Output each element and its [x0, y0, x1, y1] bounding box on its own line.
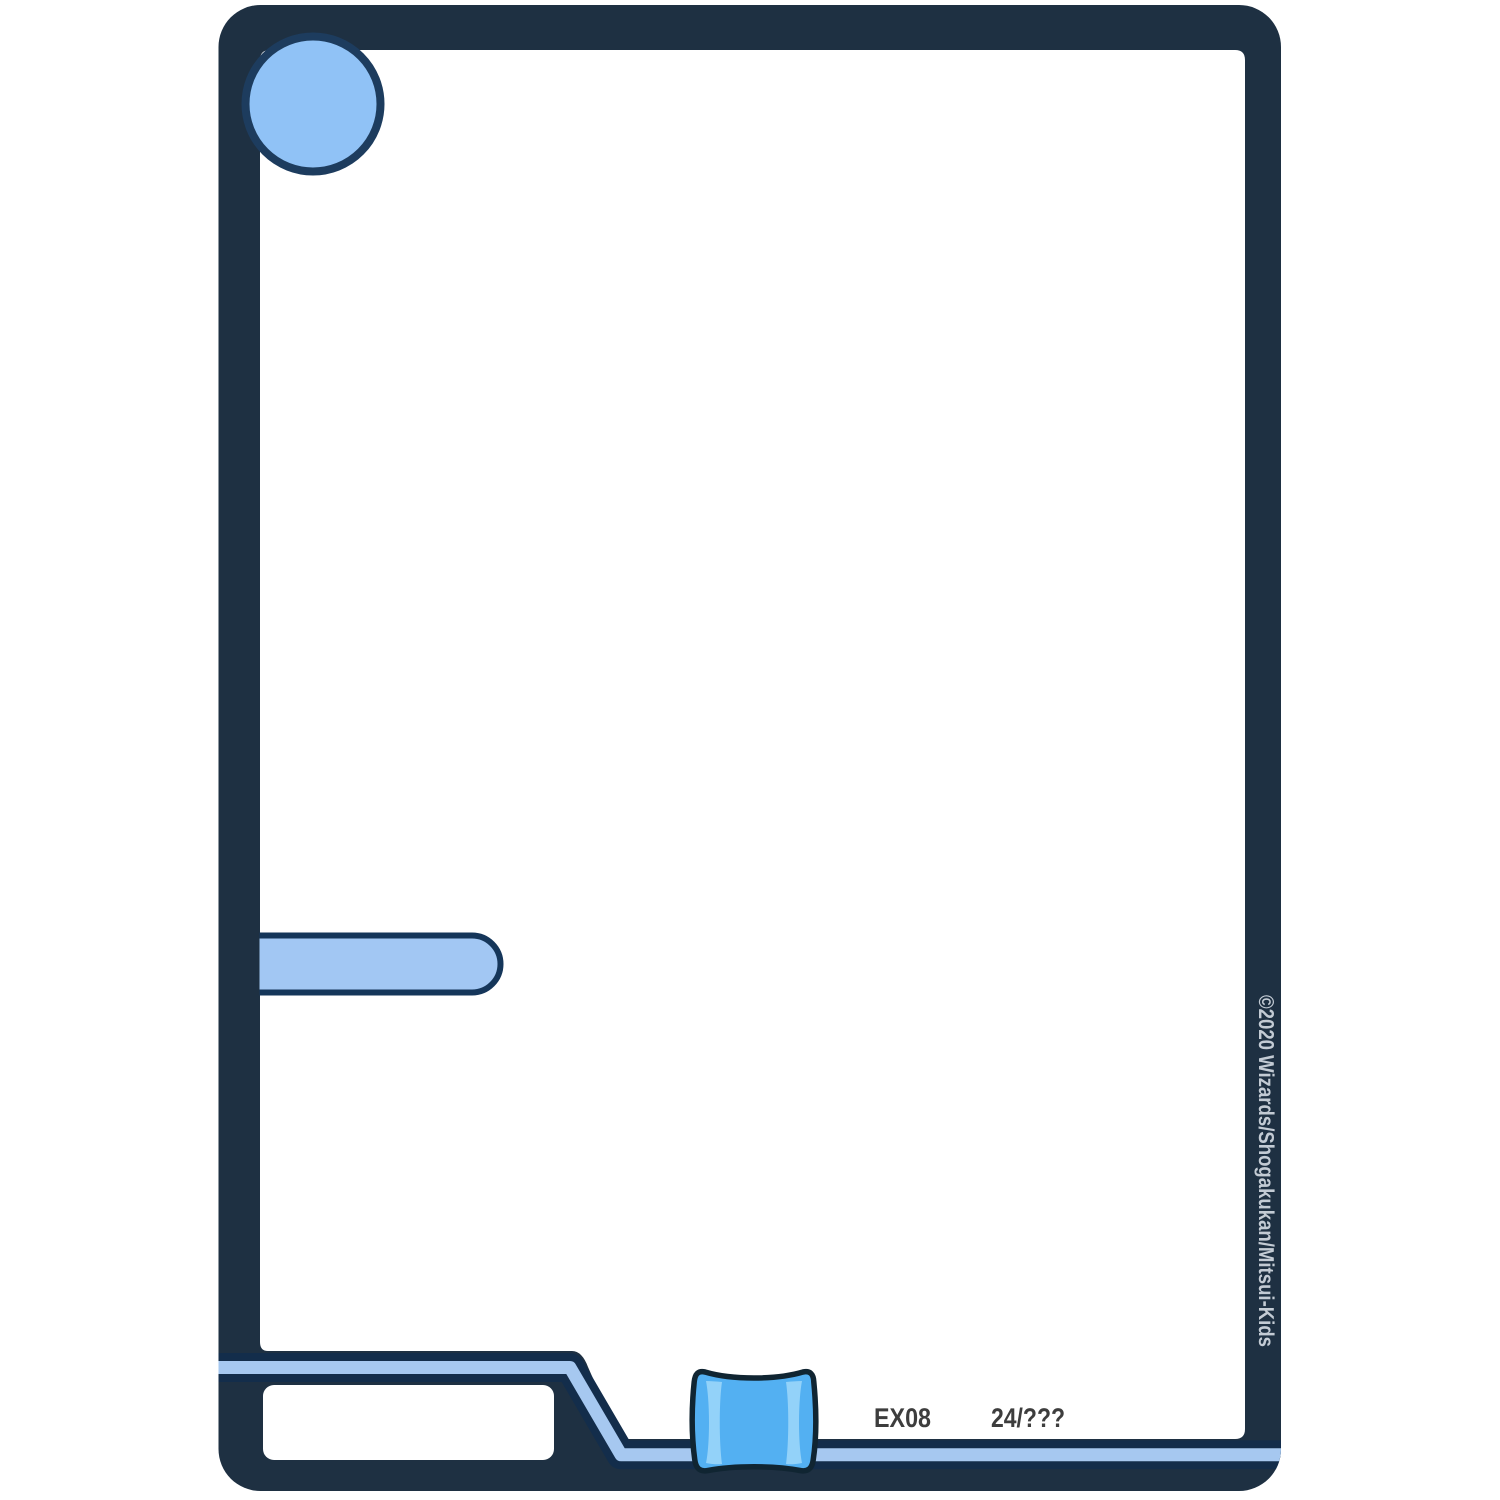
svg-text:©2020 Wizards/Shogakukan/Mitsu: ©2020 Wizards/Shogakukan/Mitsui-Kids — [1254, 995, 1278, 1347]
svg-text:EX08: EX08 — [874, 1403, 931, 1433]
svg-text:24/???: 24/??? — [991, 1403, 1065, 1433]
